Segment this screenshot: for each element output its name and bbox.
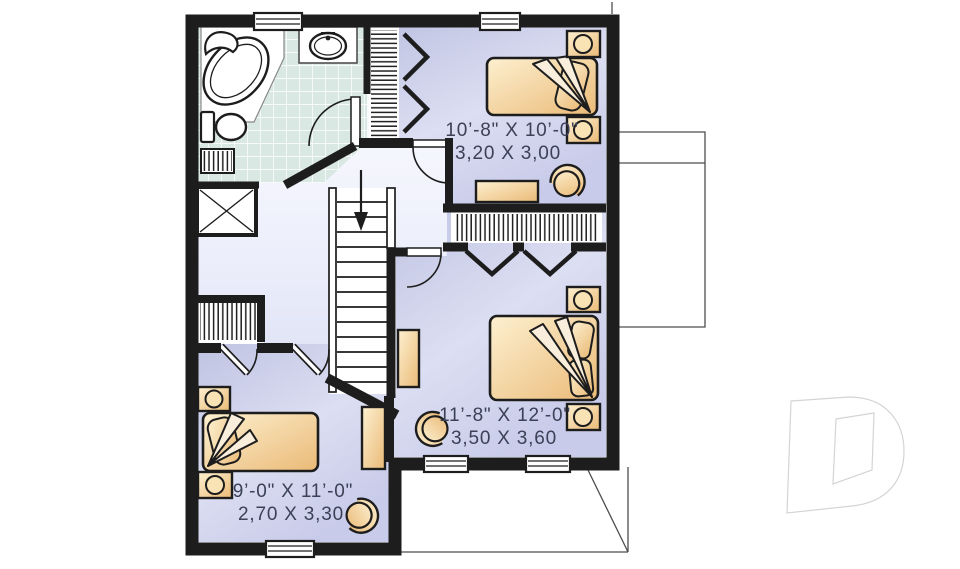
nightstand xyxy=(567,31,600,57)
window xyxy=(526,456,570,472)
bathroom-vanity-sink xyxy=(299,27,357,63)
watermark-logo xyxy=(787,397,904,513)
dimension-label-metric: 3,50 X 3,60 xyxy=(451,428,557,449)
staircase xyxy=(329,170,396,394)
floor-plan-page: 10’-8" X 10’-0" 3,20 X 3,00 11’-8" X 12’… xyxy=(0,0,960,569)
dimension-label-imperial: 9’-0" X 11’-0" xyxy=(233,481,353,502)
bathroom-cabinet xyxy=(201,149,234,173)
closet-bedroom-3 xyxy=(196,297,264,344)
window xyxy=(266,541,314,557)
nightstand xyxy=(198,472,232,498)
nightstand xyxy=(198,387,230,411)
dimension-label-imperial: 10’-8" X 10’-0" xyxy=(445,120,578,141)
window xyxy=(424,456,468,472)
dimension-label-metric: 2,70 X 3,30 xyxy=(238,504,344,525)
dresser xyxy=(362,407,385,469)
closet-bedroom-2 xyxy=(451,212,602,243)
nightstand xyxy=(567,287,600,312)
dimension-label-imperial: 11’-8" X 12’-0" xyxy=(439,405,571,426)
logo-d-outline xyxy=(787,397,904,513)
stair-rail-right xyxy=(387,188,395,248)
logo-d-counter xyxy=(833,413,874,484)
closet-bedroom-1 xyxy=(369,26,399,144)
toilet xyxy=(201,112,246,142)
floor-plan-canvas: 10’-8" X 10’-0" 3,20 X 3,00 11’-8" X 12’… xyxy=(0,0,960,569)
roof-line-right xyxy=(613,132,705,327)
bed-1 xyxy=(487,56,597,115)
dresser xyxy=(476,181,538,202)
dresser xyxy=(398,330,419,387)
bed-2 xyxy=(490,316,598,400)
roof-line-bottom xyxy=(401,467,628,552)
bed-3 xyxy=(203,413,318,471)
window xyxy=(480,13,520,30)
nightstand xyxy=(567,404,600,430)
window xyxy=(254,13,302,30)
linen-closet xyxy=(197,187,256,235)
stair-rail-left xyxy=(329,188,336,392)
dimension-label-metric: 3,20 X 3,00 xyxy=(455,143,561,164)
